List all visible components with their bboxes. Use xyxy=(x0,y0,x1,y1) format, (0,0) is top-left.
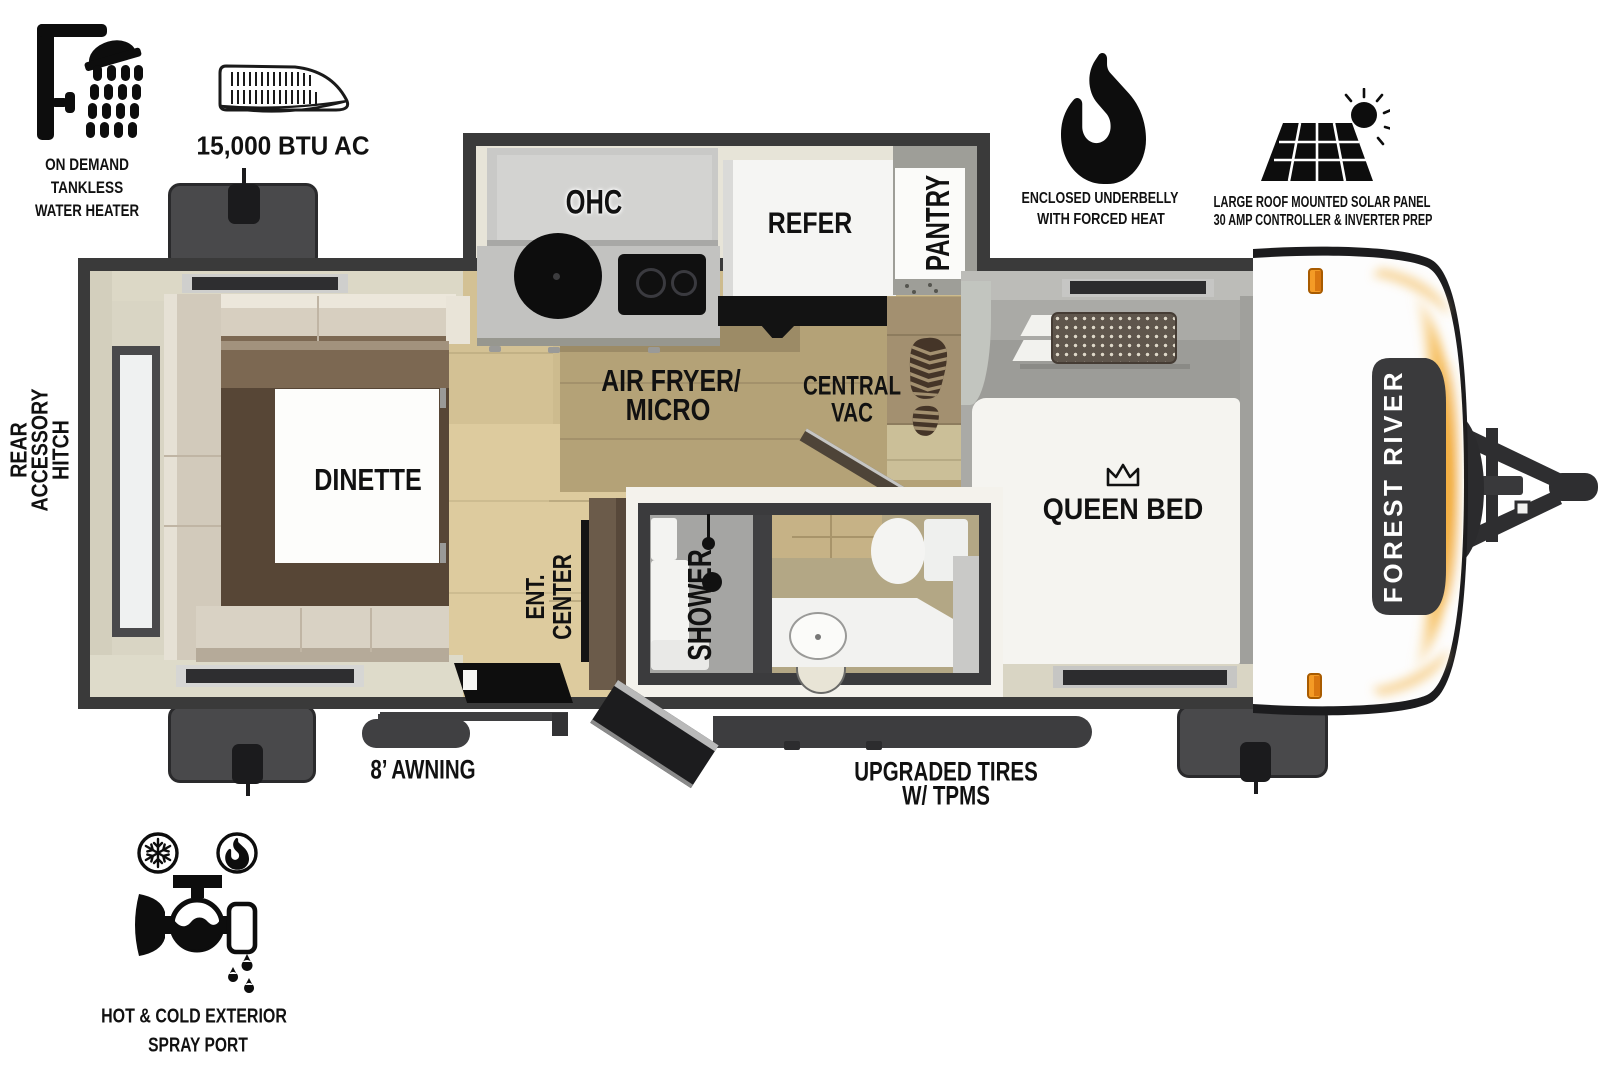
svg-text:FOREST RIVER: FOREST RIVER xyxy=(1378,369,1408,603)
